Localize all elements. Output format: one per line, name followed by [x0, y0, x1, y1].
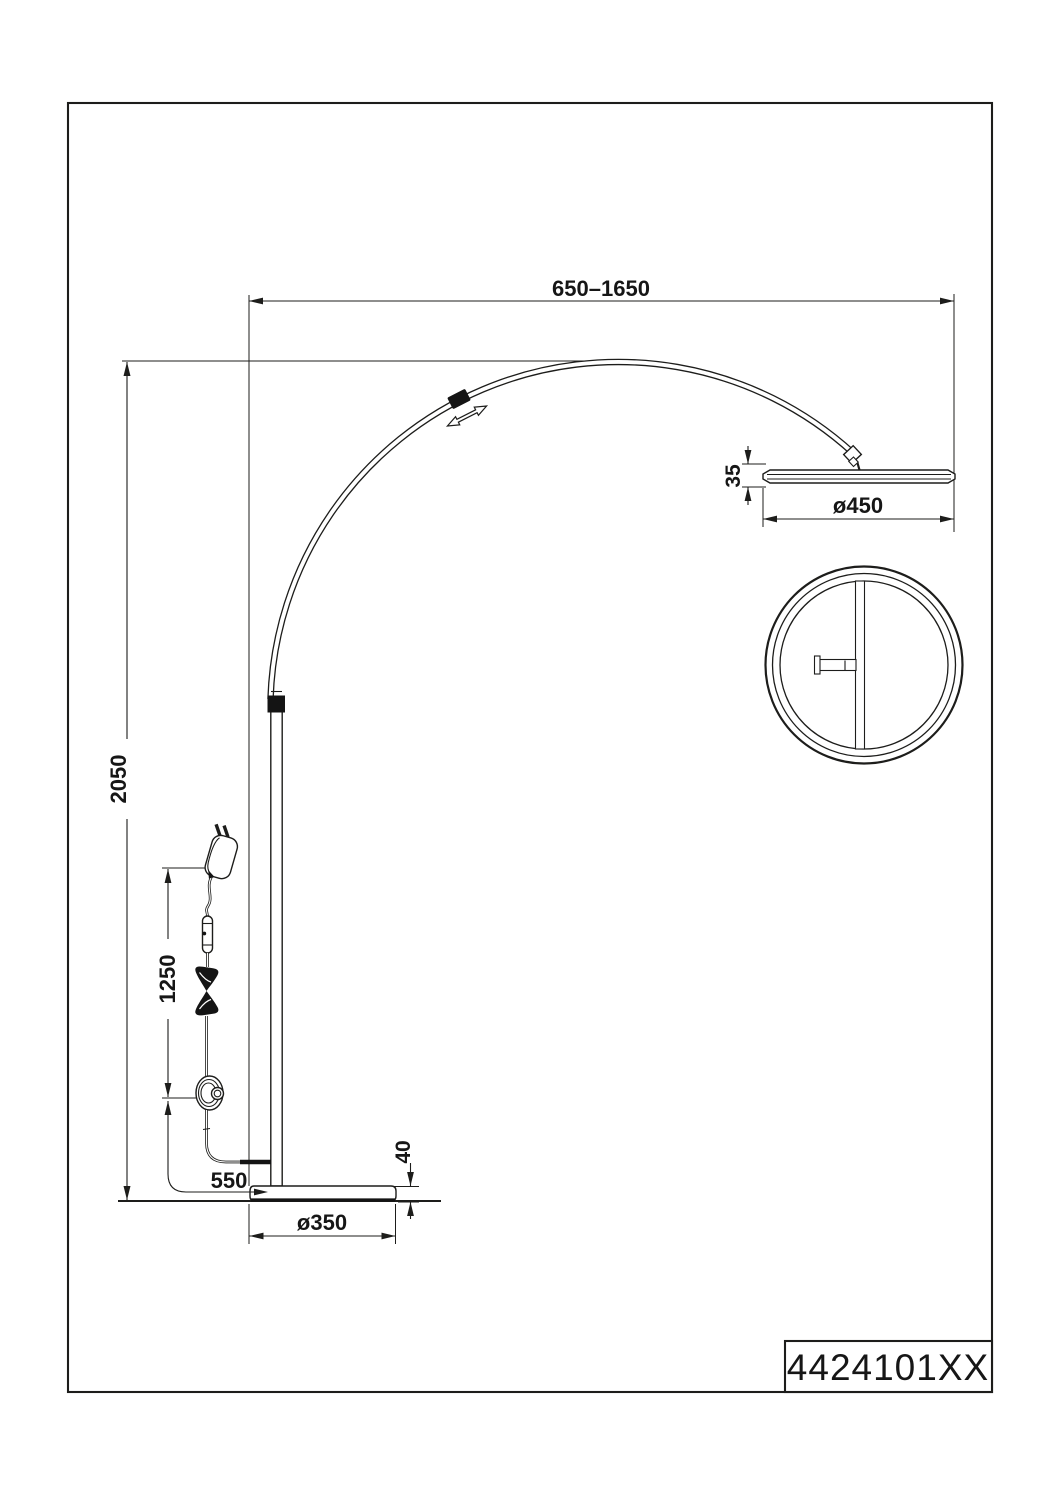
ring-arm-stub — [818, 660, 856, 671]
inline-connector — [202, 916, 212, 953]
technical-drawing: 650–1650 2050 35 ø450 1250 550 — [0, 0, 1060, 1500]
connector-dot — [202, 932, 206, 936]
plug-body — [203, 833, 240, 881]
dim-total-height: 2050 — [104, 362, 134, 1200]
dim-head-diameter: ø450 — [763, 493, 954, 522]
dim-arrow-right — [382, 1233, 396, 1240]
foot-switch — [196, 1076, 224, 1110]
dim-arrow-left — [250, 1233, 264, 1240]
dim-label-arm-reach: 650–1650 — [552, 276, 650, 301]
dim-label-cable-upper: 1250 — [155, 955, 180, 1004]
ring-arm-cap — [815, 656, 821, 674]
title-block: 4424101XX — [785, 1341, 992, 1392]
lamp-arc-arm — [271, 362, 854, 699]
dim-arm-reach: 650–1650 — [249, 276, 954, 304]
dim-label-base-diameter: ø350 — [297, 1210, 347, 1235]
arc-tube-outline — [271, 362, 854, 699]
sheet-border — [68, 103, 992, 1392]
switch-button-inner — [214, 1090, 221, 1097]
dim-arrow-right — [940, 516, 954, 523]
part-number: 4424101XX — [787, 1347, 989, 1388]
lamp-base — [250, 1186, 396, 1201]
dim-arrow-top — [124, 362, 131, 376]
cable-wrap-body — [195, 966, 218, 1015]
dim-arrow-top — [407, 1172, 414, 1186]
dim-head-thickness: 35 — [722, 446, 751, 505]
dim-arrow-top — [165, 1101, 172, 1115]
head-stem — [858, 463, 860, 470]
dim-label-cable-lower: 550 — [211, 1168, 248, 1193]
cable-tick — [203, 1129, 210, 1130]
dim-arrow-bottom — [407, 1202, 414, 1216]
dim-arrow-left — [249, 298, 263, 305]
cable-bottom-core — [207, 1110, 243, 1162]
arc-tube-core — [271, 362, 854, 699]
dim-label-head-thickness: 35 — [722, 464, 745, 488]
lamp-head-side-view — [763, 446, 955, 483]
dim-arrow-top — [165, 869, 172, 883]
ring-cross-bar — [856, 581, 865, 749]
dim-arrow-left — [763, 516, 777, 523]
dim-arrow-top — [745, 450, 752, 464]
dim-arrow-bottom — [745, 487, 752, 501]
dim-label-total-height: 2050 — [106, 755, 131, 804]
drawing-page: 650–1650 2050 35 ø450 1250 550 — [0, 0, 1060, 1500]
cable-bottom-outline — [207, 1110, 243, 1162]
dim-label-head-diameter: ø450 — [833, 493, 883, 518]
dim-cable-upper: 1250 — [154, 869, 183, 1097]
dim-arrow-bottom — [165, 1083, 172, 1097]
dim-cable-lower: 550 — [165, 1101, 268, 1195]
power-plug — [201, 823, 242, 883]
cable-assembly — [195, 823, 271, 1162]
head-profile — [763, 470, 955, 483]
cable-wrap — [195, 966, 218, 1015]
pole-sleeve — [268, 696, 286, 713]
lamp-head-top-view — [766, 567, 963, 764]
lamp-pole — [268, 692, 286, 1187]
dim-arrow-right — [940, 298, 954, 305]
pole-tube — [271, 711, 282, 1186]
dim-arrow-bottom — [124, 1186, 131, 1200]
plug-prong — [213, 824, 222, 836]
dim-base-diameter: ø350 — [250, 1210, 396, 1239]
dim-label-base-thickness: 40 — [392, 1140, 415, 1163]
